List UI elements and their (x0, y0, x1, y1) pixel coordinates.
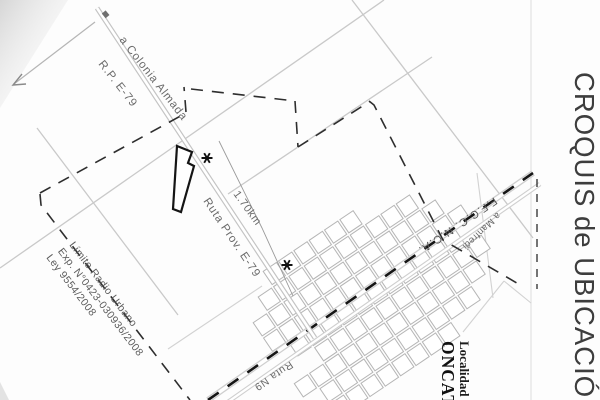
map-canvas: a Colonia Almada R.P. E-79 1.70km Ruta P… (0, 0, 600, 400)
sheet-title: CROQUIS de UBICACIÓN (569, 72, 600, 400)
locality-label: Localidad (457, 341, 472, 397)
locality-name: ONCATIVO (438, 341, 458, 400)
croquis-map-scan: a Colonia Almada R.P. E-79 1.70km Ruta P… (0, 0, 600, 400)
